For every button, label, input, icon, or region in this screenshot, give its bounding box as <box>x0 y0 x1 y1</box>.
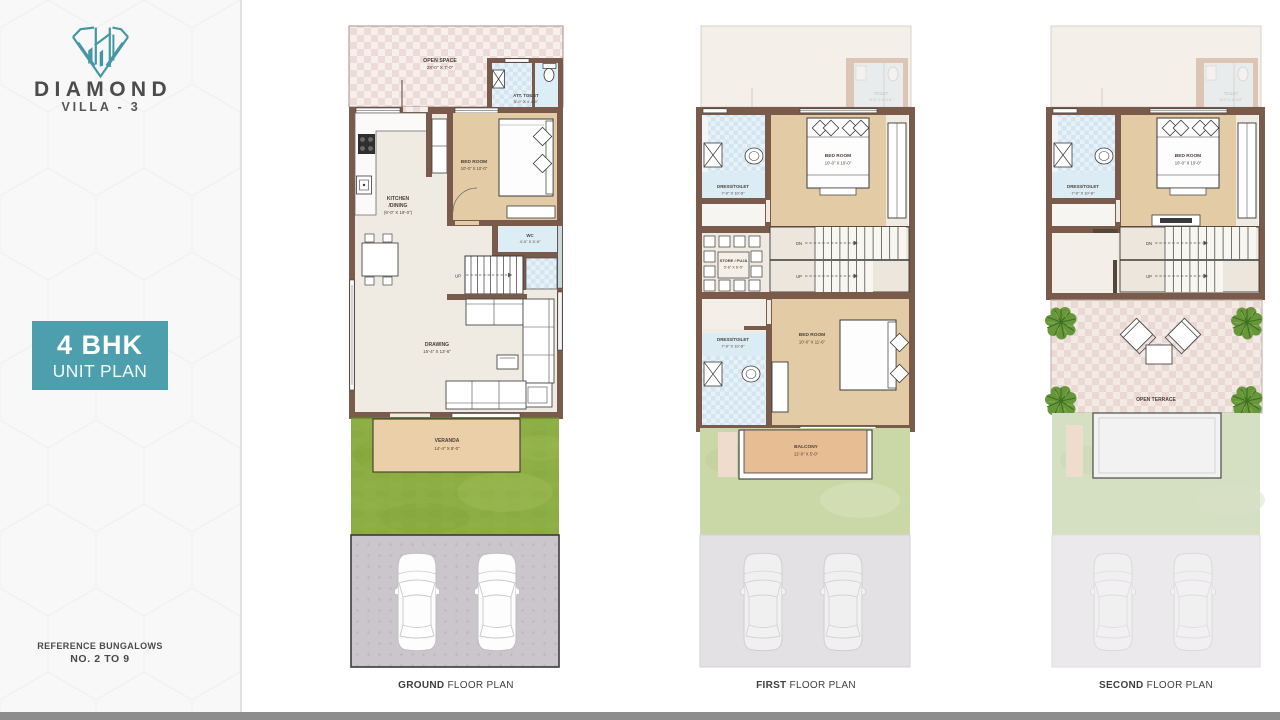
svg-text:5'-0" X 4'-4.5": 5'-0" X 4'-4.5" <box>514 99 539 104</box>
svg-text:UNIT PLAN: UNIT PLAN <box>53 361 148 381</box>
svg-text:5'-0" X 4'-4.5": 5'-0" X 4'-4.5" <box>870 98 894 102</box>
svg-text:BED ROOM: BED ROOM <box>461 159 487 165</box>
svg-text:DRAWING: DRAWING <box>425 342 449 348</box>
svg-text:ATT. TOILET: ATT. TOILET <box>513 93 539 98</box>
svg-text:FIRST FLOOR PLAN: FIRST FLOOR PLAN <box>756 680 856 691</box>
svg-text:BED ROOM: BED ROOM <box>799 332 825 338</box>
svg-text:BALCONY: BALCONY <box>794 444 819 450</box>
svg-text:(9'-0" X 19'-0"): (9'-0" X 19'-0") <box>384 210 413 215</box>
svg-text:DRESS/TOILET: DRESS/TOILET <box>717 337 749 342</box>
svg-text:OPEN SPACE: OPEN SPACE <box>423 58 457 64</box>
svg-text:UP: UP <box>455 274 461 279</box>
svg-text:UP: UP <box>796 274 802 279</box>
svg-text:10'-0" X 11'-6": 10'-0" X 11'-6" <box>799 340 826 345</box>
svg-text:DIAMOND: DIAMOND <box>34 78 172 101</box>
svg-text:7'-0" X 10'-6": 7'-0" X 10'-6" <box>1071 191 1095 196</box>
svg-text:STORE / PUJA: STORE / PUJA <box>720 258 748 263</box>
svg-text:10'-0" X 10'-0": 10'-0" X 10'-0" <box>461 166 488 171</box>
svg-text:7'-0" X 10'-6": 7'-0" X 10'-6" <box>721 344 745 349</box>
svg-text:10'-0" X 10'-0": 10'-0" X 10'-0" <box>1175 161 1202 166</box>
svg-text:VILLA - 3: VILLA - 3 <box>62 100 141 114</box>
svg-text:12'-0" X 5'-0": 12'-0" X 5'-0" <box>794 452 819 457</box>
svg-text:BED ROOM: BED ROOM <box>825 153 851 159</box>
svg-text:GROUND FLOOR PLAN: GROUND FLOOR PLAN <box>398 680 514 691</box>
svg-text:VERANDA: VERANDA <box>435 438 460 444</box>
svg-text:NO. 2 TO 9: NO. 2 TO 9 <box>70 653 130 665</box>
svg-text:TOILET: TOILET <box>874 91 889 96</box>
svg-text:5'-0" X 4'-4.5": 5'-0" X 4'-4.5" <box>1220 98 1244 102</box>
svg-text:TOILET: TOILET <box>1224 91 1239 96</box>
svg-text:4'-0" X 3'-9": 4'-0" X 3'-9" <box>520 239 541 244</box>
svg-text:14'-4" X 8'-0": 14'-4" X 8'-0" <box>434 446 460 451</box>
svg-text:SECOND FLOOR PLAN: SECOND FLOOR PLAN <box>1099 680 1213 691</box>
svg-text:15'-4" X 13'-6": 15'-4" X 13'-6" <box>423 349 451 354</box>
svg-text:5'-6" X 6'-0": 5'-6" X 6'-0" <box>724 266 744 270</box>
svg-text:DN: DN <box>1146 241 1152 246</box>
svg-text:/DINING: /DINING <box>389 203 408 209</box>
svg-text:7'-0" X 10'-6": 7'-0" X 10'-6" <box>721 191 745 196</box>
svg-text:REFERENCE BUNGALOWS: REFERENCE BUNGALOWS <box>37 641 163 651</box>
svg-text:4 BHK: 4 BHK <box>57 330 143 360</box>
svg-text:DN: DN <box>796 241 802 246</box>
svg-text:OPEN TERRACE: OPEN TERRACE <box>1136 397 1176 403</box>
svg-text:UP: UP <box>1146 274 1152 279</box>
svg-text:10'-0" X 10'-0": 10'-0" X 10'-0" <box>825 161 852 166</box>
svg-text:KITCHEN: KITCHEN <box>387 196 410 202</box>
svg-text:28'-0" X 7'-0": 28'-0" X 7'-0" <box>427 65 454 70</box>
svg-text:BED ROOM: BED ROOM <box>1175 153 1201 159</box>
svg-text:DRESS/TOILET: DRESS/TOILET <box>1067 184 1099 189</box>
svg-text:DRESS/TOILET: DRESS/TOILET <box>717 184 749 189</box>
svg-text:WC: WC <box>526 233 534 238</box>
